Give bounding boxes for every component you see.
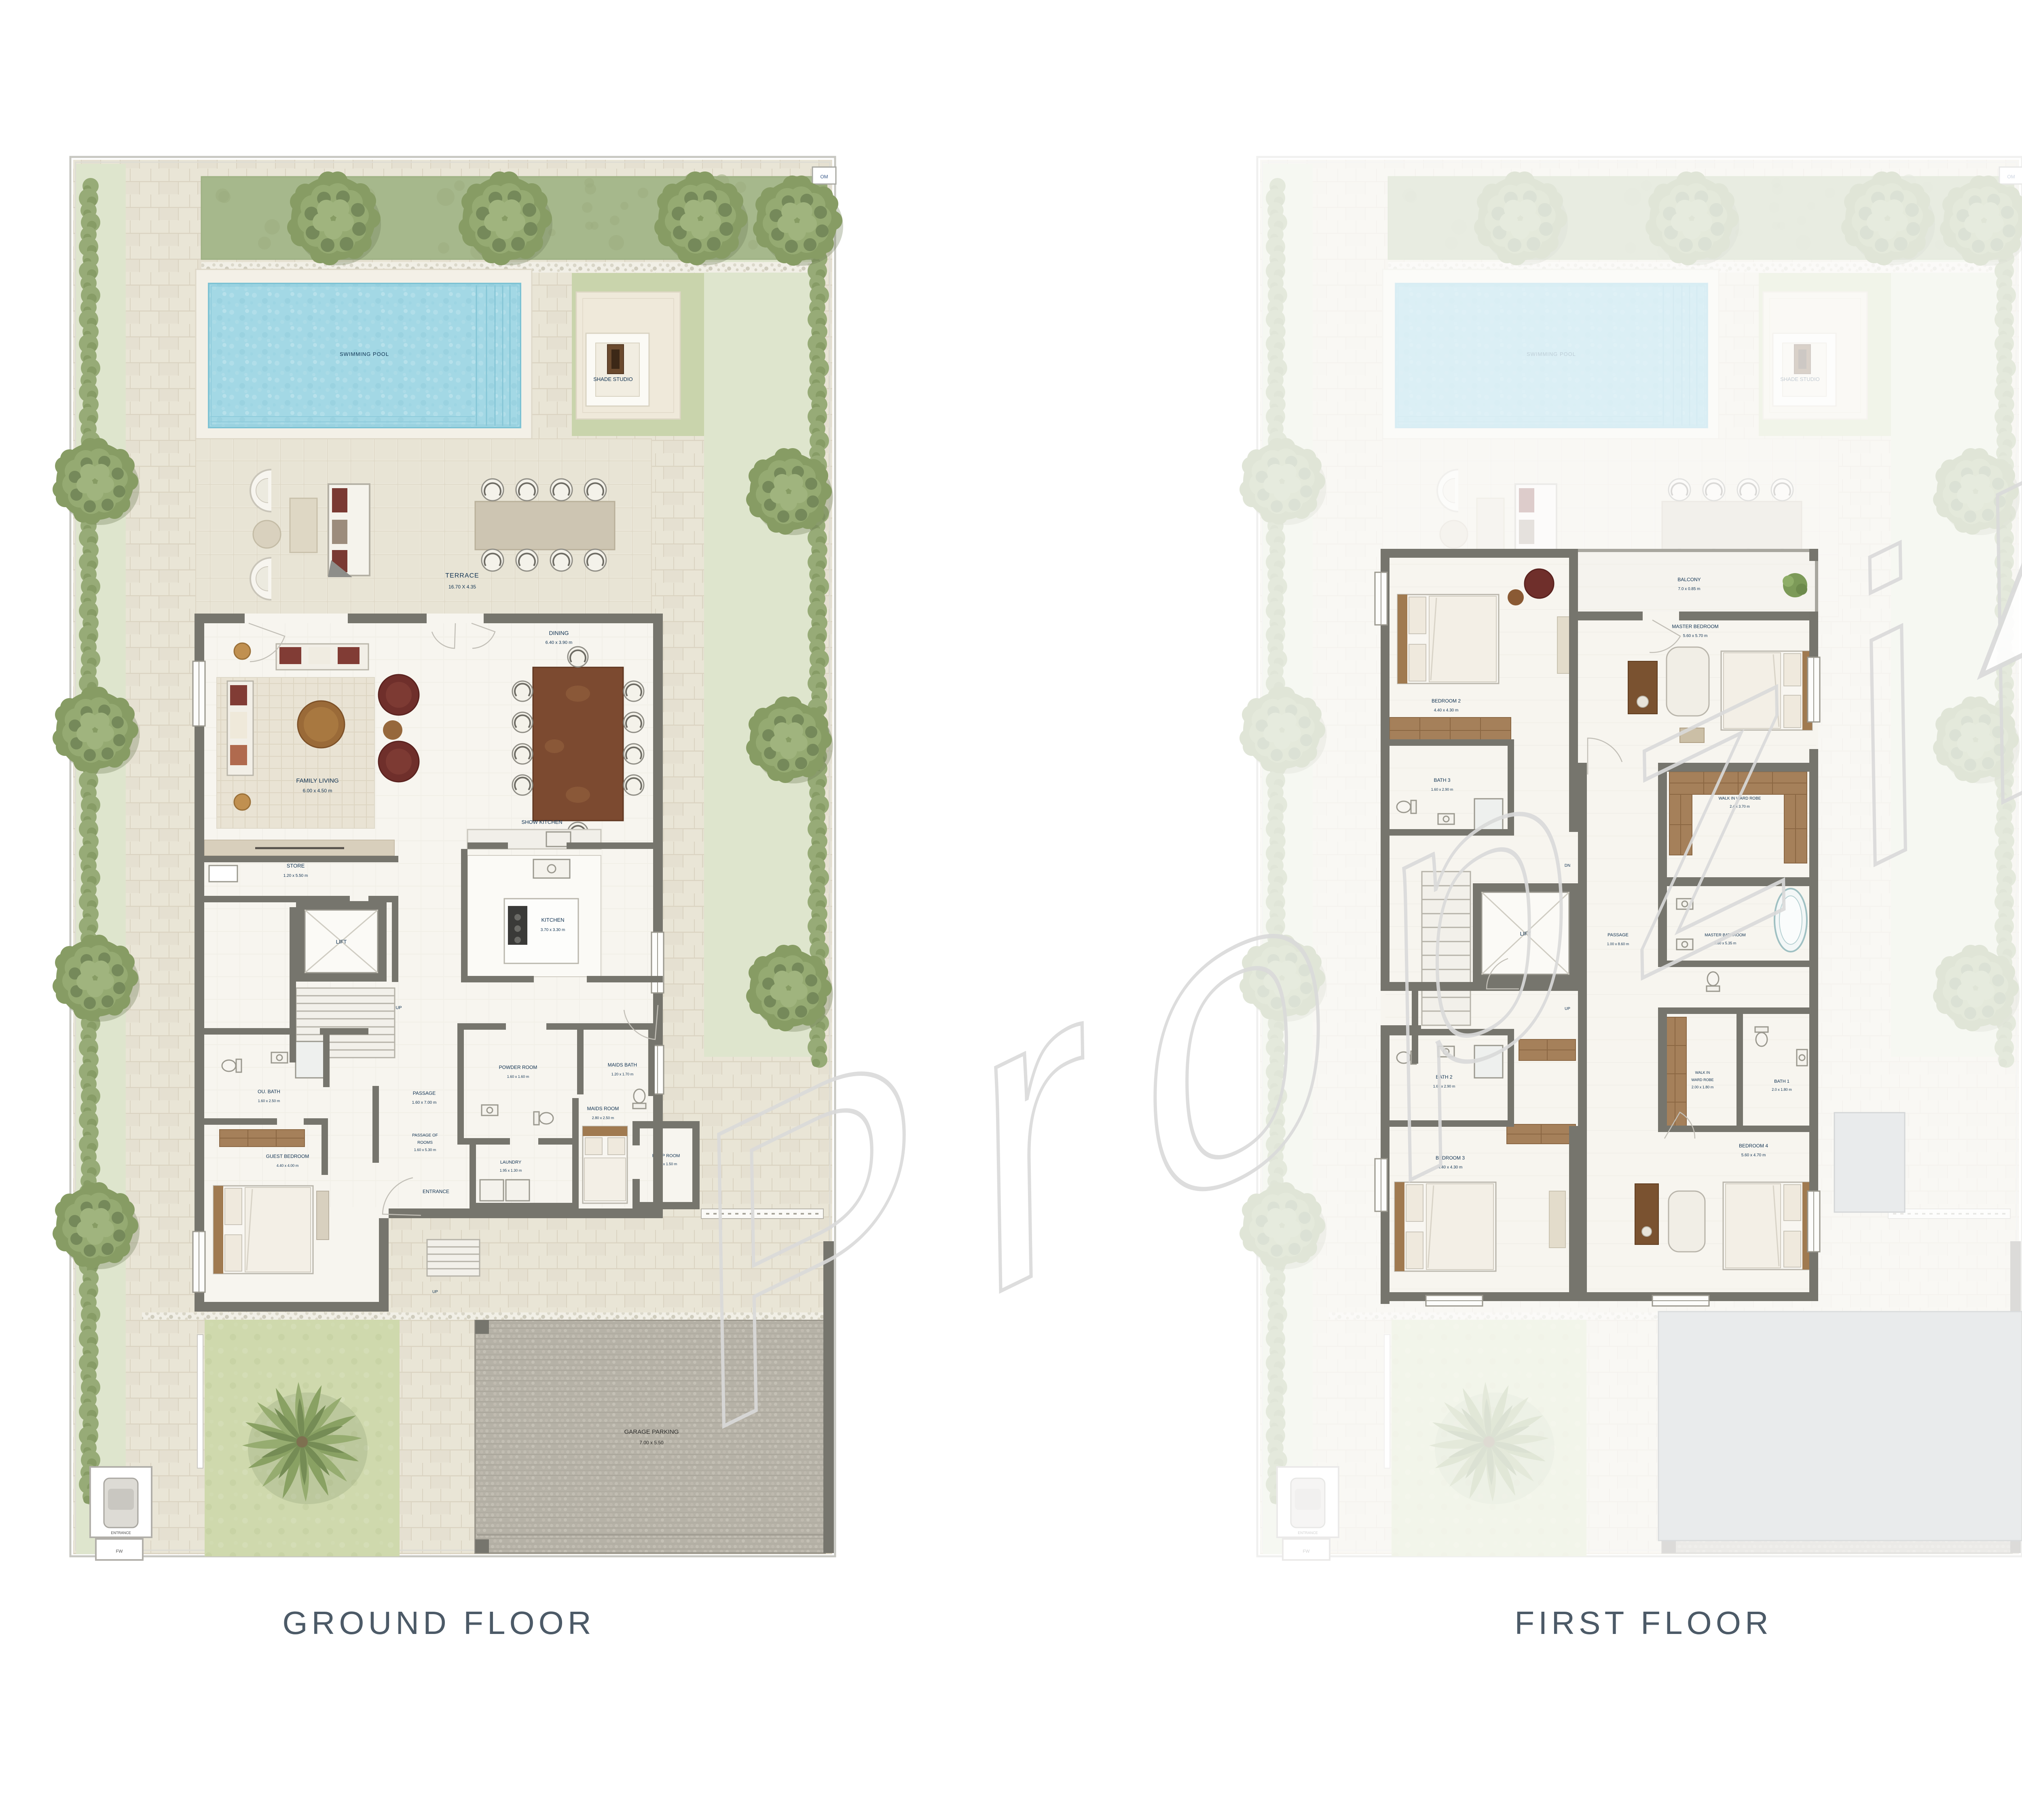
svg-text:UP: UP xyxy=(396,1005,402,1010)
svg-text:OU. BATH: OU. BATH xyxy=(258,1089,280,1094)
svg-text:1.95 x 1.30 m: 1.95 x 1.30 m xyxy=(500,1168,522,1172)
svg-text:GUEST BEDROOM: GUEST BEDROOM xyxy=(266,1153,309,1159)
svg-text:WALK IN: WALK IN xyxy=(1695,1071,1710,1075)
svg-text:ENTRANCE: ENTRANCE xyxy=(423,1189,449,1194)
svg-text:BEDROOM 4: BEDROOM 4 xyxy=(1739,1143,1768,1149)
svg-text:DINING: DINING xyxy=(549,630,569,636)
svg-text:STORE: STORE xyxy=(287,863,305,869)
svg-text:BATH 1: BATH 1 xyxy=(1774,1079,1789,1084)
svg-text:6.40 x 3.90 m: 6.40 x 3.90 m xyxy=(546,640,573,645)
svg-text:1.60 x 5.30 m: 1.60 x 5.30 m xyxy=(414,1148,436,1152)
svg-text:4.40 x 4.00 m: 4.40 x 4.00 m xyxy=(277,1164,299,1168)
svg-text:1.60 x 2.50 m: 1.60 x 2.50 m xyxy=(258,1099,280,1103)
svg-text:1.20 x 1.70 m: 1.20 x 1.70 m xyxy=(611,1072,634,1076)
svg-text:MAIDS ROOM: MAIDS ROOM xyxy=(587,1106,619,1111)
svg-text:2.80 x 2.50 m: 2.80 x 2.50 m xyxy=(592,1116,614,1120)
svg-text:1.60 x 1.60 m: 1.60 x 1.60 m xyxy=(507,1075,529,1079)
svg-text:1.60 x 7.00 m: 1.60 x 7.00 m xyxy=(412,1100,437,1105)
svg-text:POWDER ROOM: POWDER ROOM xyxy=(499,1064,537,1070)
svg-text:LIFT: LIFT xyxy=(336,939,347,945)
svg-text:5.60 x 4.70 m: 5.60 x 4.70 m xyxy=(1741,1153,1766,1158)
svg-text:3.70 x 3.30 m: 3.70 x 3.30 m xyxy=(541,928,565,932)
svg-text:1.20 x 5.50 m: 1.20 x 5.50 m xyxy=(283,874,308,878)
svg-text:FAMILY LIVING: FAMILY LIVING xyxy=(296,777,338,784)
svg-text:SHOW KITCHEN: SHOW KITCHEN xyxy=(521,819,562,825)
svg-text:MAIDS BATH: MAIDS BATH xyxy=(608,1062,637,1068)
svg-text:PASSAGE OF: PASSAGE OF xyxy=(412,1133,438,1138)
svg-text:FIRST FLOOR: FIRST FLOOR xyxy=(1514,1605,1772,1641)
svg-text:PASSAGE: PASSAGE xyxy=(413,1090,436,1096)
svg-text:ROOMS: ROOMS xyxy=(417,1141,433,1145)
svg-text:2.00 x 1.80 m: 2.00 x 1.80 m xyxy=(1692,1085,1714,1089)
svg-text:KITCHEN: KITCHEN xyxy=(541,917,564,923)
svg-text:GROUND FLOOR: GROUND FLOOR xyxy=(282,1605,595,1641)
svg-text:UP: UP xyxy=(432,1290,438,1294)
svg-text:LAUNDRY: LAUNDRY xyxy=(500,1160,522,1165)
svg-text:6.00 x 4.50 m: 6.00 x 4.50 m xyxy=(303,788,332,794)
svg-text:2.0 x 1.80 m: 2.0 x 1.80 m xyxy=(1772,1088,1792,1092)
svg-text:WARD ROBE: WARD ROBE xyxy=(1691,1078,1713,1082)
